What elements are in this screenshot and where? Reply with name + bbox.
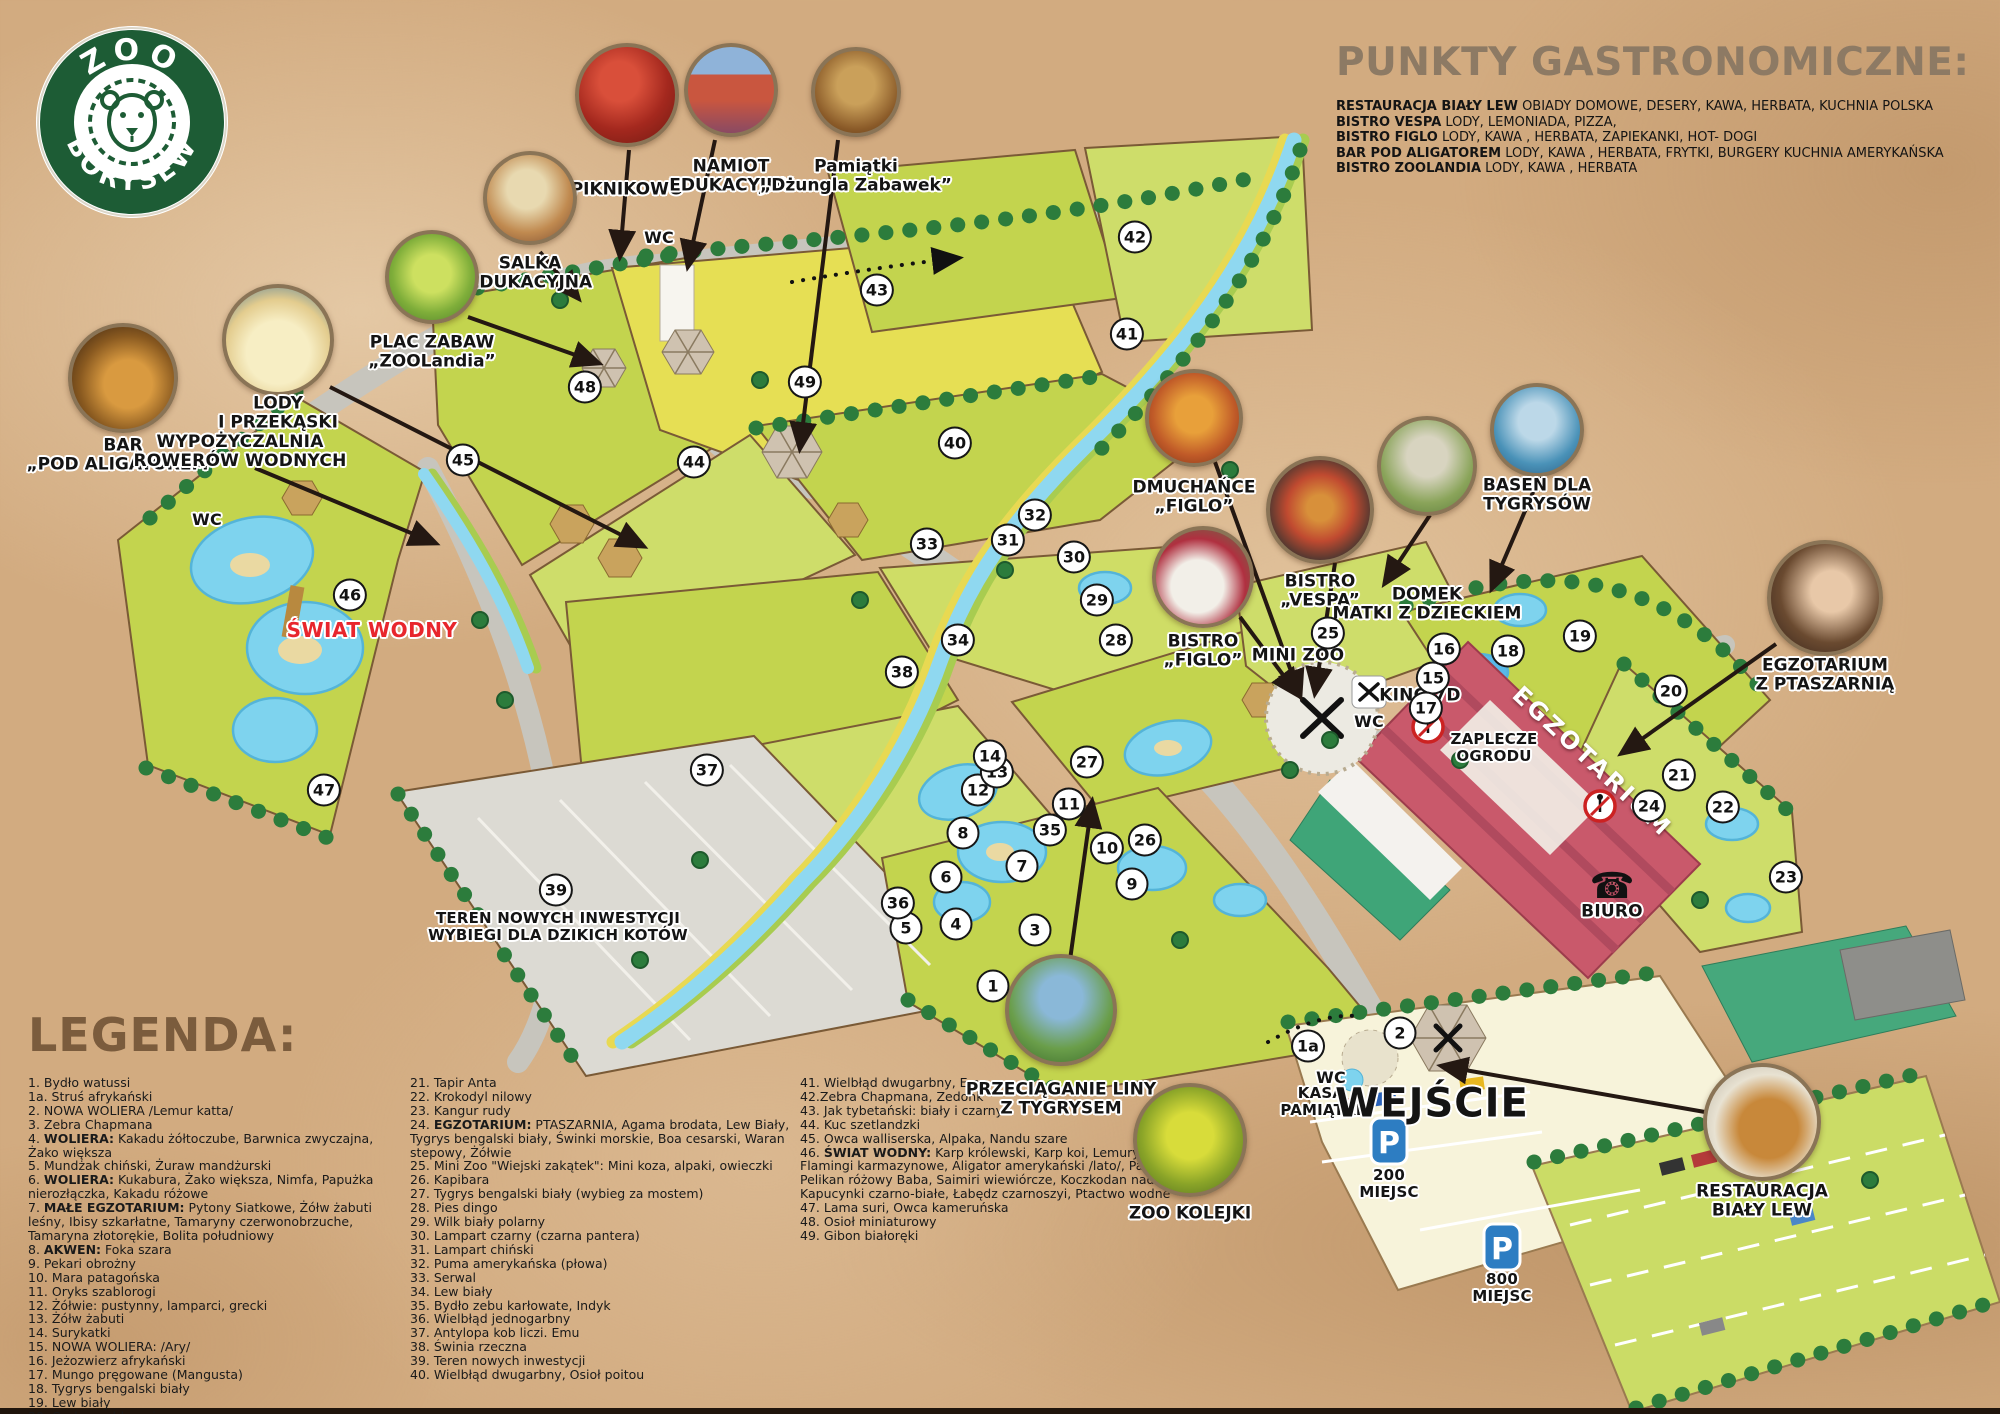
map-badge: 24: [1632, 790, 1666, 823]
map-label: WYPOŻYCZALNIA ROWERÓW WODNYCH: [133, 433, 346, 471]
gastro-item-name: BAR POD ALIGATOREM: [1336, 146, 1501, 161]
map-badge: 46: [333, 579, 367, 612]
legend-item: 18. Tygrys bengalski biały: [28, 1382, 400, 1396]
gastro-item: BISTRO VESPA LODY, LEMONIADA, PIZZA,: [1336, 115, 1996, 131]
legend-item: 9. Pekari obrożny: [28, 1257, 400, 1271]
callout-photo-domek: [1377, 416, 1477, 516]
map-label: ŚWIAT WODNY: [287, 619, 458, 641]
map-badge: 2: [1384, 1017, 1417, 1050]
callout-label-ptaszarnia: EGZOTARIUM Z PTASZARNIĄ: [1756, 657, 1895, 696]
legend-item: 8. AKWEN: Foka szara: [28, 1243, 400, 1257]
callout-photo-pamiatki: [811, 47, 901, 137]
map-badge: 3: [1019, 914, 1052, 947]
map-badge: 29: [1080, 584, 1114, 617]
map-badge: 10: [1090, 832, 1124, 865]
callout-photo-bar: [68, 323, 178, 433]
map-badge: 48: [568, 371, 602, 404]
gastro-item-desc: LODY, KAWA , HERBATA, ZAPIEKANKI, HOT- D…: [1438, 130, 1757, 145]
legend-item: 22. Krokodyl nilowy: [410, 1090, 798, 1104]
map-badge: 41: [1110, 318, 1144, 351]
legend-item: 10. Mara patagońska: [28, 1271, 400, 1285]
map-badge: 30: [1057, 541, 1091, 574]
map-badge: 17: [1409, 692, 1443, 725]
callout-label-pamiatki: Pamiątki „Dżungla Zabawek”: [760, 158, 952, 197]
legend-item: 26. Kapibara: [410, 1173, 798, 1187]
gastro-item-desc: LODY, KAWA , HERBATA, FRYTKI, BURGERY KU…: [1501, 146, 1944, 161]
map-badge: 49: [788, 366, 822, 399]
callout-label-restauracja: RESTAURACJA BIAŁY LEW: [1696, 1183, 1828, 1222]
map-badge: 1: [977, 970, 1010, 1003]
map-label: 800 MIEJSC: [1472, 1271, 1531, 1305]
callout-photo-ptaszarnia: [1767, 540, 1883, 656]
callout-photo-piknikowo: [575, 43, 679, 147]
legend-item: 28. Pies dingo: [410, 1201, 798, 1215]
callout-label-basen: BASEN DLA TYGRYSÓW: [1483, 477, 1591, 516]
legend-item: 1a. Struś afrykański: [28, 1090, 400, 1104]
svg-text:P: P: [1491, 1232, 1513, 1267]
map-badge: 44: [677, 446, 711, 479]
legend-item: 39. Teren nowych inwestycji: [410, 1354, 798, 1368]
callout-photo-salka: [483, 151, 577, 245]
callout-photo-tug: [1005, 954, 1117, 1066]
map-badge: 32: [1018, 499, 1052, 532]
legend-item: 38. Świnia rzeczna: [410, 1340, 798, 1354]
legend-item: 25. Mini Zoo "Wiejski zakątek": Mini koz…: [410, 1159, 798, 1173]
map-badge: 23: [1769, 861, 1803, 894]
legend-item: 35. Bydło zebu karłowate, Indyk: [410, 1299, 798, 1313]
callout-photo-restauracja: [1703, 1063, 1821, 1181]
map-badge: 20: [1654, 675, 1688, 708]
legend-item: 29. Wilk biały polarny: [410, 1215, 798, 1229]
callout-photo-figlo: [1152, 526, 1254, 628]
gastro-list: RESTAURACJA BIAŁY LEW OBIADY DOMOWE, DES…: [1336, 99, 1996, 177]
gastro-item-name: RESTAURACJA BIAŁY LEW: [1336, 99, 1518, 114]
map-badge: 14: [973, 740, 1007, 773]
map-badge: 25: [1311, 617, 1345, 650]
map-label: WC: [192, 511, 222, 529]
map-badge: 4: [940, 908, 973, 941]
legend-item: 13. Żółw żabuti: [28, 1312, 400, 1326]
legend-item: 1. Bydło watussi: [28, 1076, 400, 1090]
gastro-item-name: BISTRO VESPA: [1336, 115, 1441, 130]
callout-label-dmuchance: DMUCHAŃCE „FIGLO”: [1132, 479, 1255, 518]
legend-column-1: 1. Bydło watussi1a. Struś afrykański2. N…: [28, 1076, 400, 1414]
zoo-map-poster: ☎ P P: [0, 0, 2000, 1414]
map-badge: 22: [1706, 791, 1740, 824]
map-badge: 8: [947, 817, 980, 850]
callout-photo-basen: [1490, 383, 1584, 477]
callout-label-figlo: BISTRO „FIGLO”: [1164, 633, 1243, 672]
gastro-item-desc: LODY, KAWA , HERBATA: [1481, 161, 1637, 176]
map-badge: 39: [539, 874, 573, 907]
callout-photo-plac: [385, 230, 479, 324]
map-label: WC: [644, 229, 674, 247]
legend-item: 33. Serwal: [410, 1271, 798, 1285]
map-badge: 35: [1033, 814, 1067, 847]
zoo-logo: ZOO BORYSEW: [34, 24, 230, 220]
legend-item: 32. Puma amerykańska (płowa): [410, 1257, 798, 1271]
map-label: WC: [1354, 713, 1384, 731]
map-badge: 36: [881, 887, 915, 920]
legend-item: 21. Tapir Anta: [410, 1076, 798, 1090]
legend-panel: LEGENDA: 1. Bydło watussi1a. Struś afryk…: [28, 1008, 1288, 1414]
callout-label-kolejka: ZOO KOLEJKI: [1129, 1204, 1251, 1223]
callout-photo-dmuchance: [1145, 369, 1243, 467]
callout-label-lody: LODY I PRZEKĄSKI: [218, 395, 338, 434]
legend-column-2: 21. Tapir Anta22. Krokodyl nilowy23. Kan…: [410, 1076, 798, 1414]
legend-item: 20. Oryks szablorogi: [28, 1410, 400, 1414]
map-badge: 42: [1118, 221, 1152, 254]
map-label: WEJŚCIE: [1335, 1082, 1529, 1127]
map-label: 200 MIEJSC: [1359, 1167, 1418, 1201]
map-badge: 7: [1006, 850, 1039, 883]
callout-label-domek: DOMEK MATKI Z DZIECKIEM: [1333, 586, 1522, 625]
gastro-item-desc: LODY, LEMONIADA, PIZZA,: [1441, 115, 1616, 130]
gastro-item-name: BISTRO ZOOLANDIA: [1336, 161, 1481, 176]
gastro-title: PUNKTY GASTRONOMICZNE:: [1336, 40, 1996, 85]
map-badge: 45: [446, 444, 480, 477]
map-badge: 40: [938, 427, 972, 460]
callout-label-piknikowo: PIKNIKOWO: [571, 180, 684, 199]
legend-item: 37. Antylopa kob liczi. Emu: [410, 1326, 798, 1340]
map-badge: 18: [1491, 635, 1525, 668]
callout-photo-kolejka: [1133, 1083, 1247, 1197]
legend-item: 7. MAŁE EGZOTARIUM: Pytony Siatkowe, Żół…: [28, 1201, 400, 1243]
callout-label-salka: SALKA EDUKACYJNA: [468, 255, 592, 294]
map-badge: 43: [860, 274, 894, 307]
legend-item: 31. Lampart chiński: [410, 1243, 798, 1257]
callout-photo-namiot: [684, 43, 778, 137]
map-badge: 27: [1070, 746, 1104, 779]
callout-label-tug: PRZECIĄGANIE LINY Z TYGRYSEM: [966, 1081, 1156, 1120]
legend-item: 2. NOWA WOLIERA /Lemur katta/: [28, 1104, 400, 1118]
gastro-panel: PUNKTY GASTRONOMICZNE: RESTAURACJA BIAŁY…: [1336, 40, 1996, 177]
map-badge: 16: [1427, 633, 1461, 666]
map-badge: 33: [910, 528, 944, 561]
map-badge: 21: [1662, 759, 1696, 792]
legend-item: 5. Mundżak chiński, Żuraw mandżurski: [28, 1159, 400, 1173]
map-badge: 6: [930, 861, 963, 894]
legend-item: 4. WOLIERA: Kakadu żółtoczube, Barwnica …: [28, 1132, 400, 1160]
map-label: MINI ZOO: [1252, 646, 1345, 665]
legend-item: 14. Surykatki: [28, 1326, 400, 1340]
map-badge: 34: [941, 624, 975, 657]
legend-item: 30. Lampart czarny (czarna pantera): [410, 1229, 798, 1243]
map-badge: 1a: [1291, 1030, 1325, 1063]
gastro-item-name: BISTRO FIGLO: [1336, 130, 1438, 145]
callout-label-plac: PLAC ZABAW „ZOOLandia”: [368, 334, 495, 373]
gastro-item: BAR POD ALIGATOREM LODY, KAWA , HERBATA,…: [1336, 146, 1996, 162]
legend-item: 24. EGZOTARIUM: PTASZARNIA, Agama brodat…: [410, 1118, 798, 1160]
map-badge: 47: [307, 774, 341, 807]
legend-item: 12. Żółwie: pustynny, lamparci, grecki: [28, 1299, 400, 1313]
map-badge: 26: [1128, 824, 1162, 857]
map-badge: 37: [690, 754, 724, 787]
legend-item: 19. Lew biały: [28, 1396, 400, 1410]
legend-item: 3. Zebra Chapmana: [28, 1118, 400, 1132]
legend-item: 23. Kangur rudy: [410, 1104, 798, 1118]
legend-item: 15. NOWA WOLIERA: /Ary/: [28, 1340, 400, 1354]
map-badge: 38: [885, 656, 919, 689]
map-label: ZAPLECZE OGRODU: [1450, 731, 1537, 765]
map-badge: 15: [1416, 662, 1450, 695]
callout-photo-vespa: [1266, 456, 1374, 564]
svg-text:P: P: [1378, 1126, 1400, 1161]
gastro-item: BISTRO FIGLO LODY, KAWA , HERBATA, ZAPIE…: [1336, 130, 1996, 146]
map-badge: 31: [991, 524, 1025, 557]
gastro-item: RESTAURACJA BIAŁY LEW OBIADY DOMOWE, DES…: [1336, 99, 1996, 115]
legend-item: 11. Oryks szablorogi: [28, 1285, 400, 1299]
legend-item: 6. WOLIERA: Kukabura, Żako większa, Nimf…: [28, 1173, 400, 1201]
map-label: BIURO: [1581, 902, 1643, 921]
legend-item: 49. Gibon białoręki: [800, 1229, 1220, 1243]
map-label: TEREN NOWYCH INWESTYCJI WYBIEGI DLA DZIK…: [428, 910, 688, 944]
map-badge: 19: [1563, 620, 1597, 653]
legend-item: 27. Tygrys bengalski biały (wybieg za mo…: [410, 1187, 798, 1201]
map-badge: 28: [1099, 624, 1133, 657]
legend-item: 16. Jeżozwierz afrykański: [28, 1354, 400, 1368]
map-badge: 9: [1116, 868, 1149, 901]
legend-item: 36. Wielbłąd jednogarbny: [410, 1312, 798, 1326]
callout-photo-lody: [222, 284, 334, 396]
legend-item: 17. Mungo pręgowane (Mangusta): [28, 1368, 400, 1382]
legend-item: 40. Wielbłąd dwugarbny, Osioł poitou: [410, 1368, 798, 1382]
legend-item: 34. Lew biały: [410, 1285, 798, 1299]
gastro-item: BISTRO ZOOLANDIA LODY, KAWA , HERBATA: [1336, 161, 1996, 177]
gastro-item-desc: OBIADY DOMOWE, DESERY, KAWA, HERBATA, KU…: [1518, 99, 1933, 114]
